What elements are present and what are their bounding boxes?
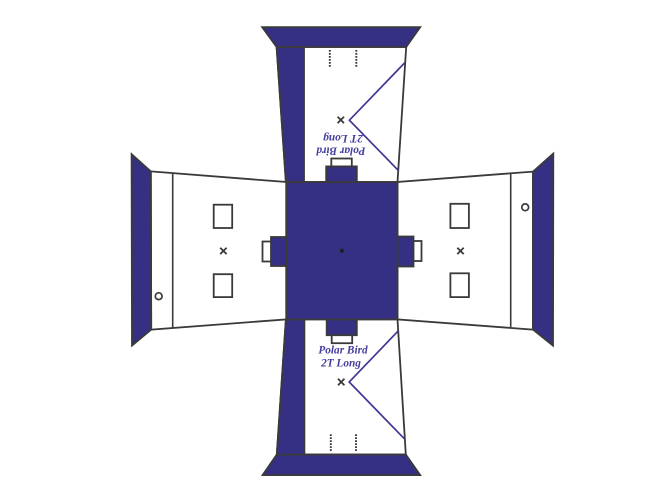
svg-text:2T Long: 2T Long [323, 132, 364, 144]
svg-text:Polar Bird: Polar Bird [318, 345, 368, 357]
svg-text:2T Long: 2T Long [320, 357, 361, 369]
svg-text:Polar Bird: Polar Bird [316, 145, 366, 157]
